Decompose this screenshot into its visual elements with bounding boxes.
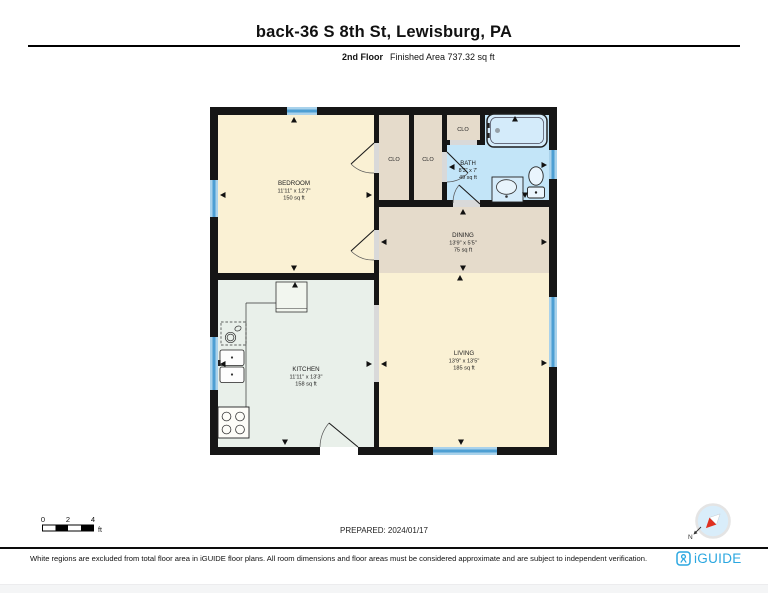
svg-text:2: 2 [66, 515, 70, 524]
iguide-logo[interactable]: iGUIDE [676, 551, 742, 566]
iguide-logo-text: iGUIDE [694, 551, 742, 566]
svg-text:13'9" x 13'5": 13'9" x 13'5" [449, 359, 480, 365]
closet-bath-label: CLO [457, 127, 469, 133]
svg-text:KITCHEN: KITCHEN [292, 366, 319, 373]
closet-bedroom-label: CLO [388, 157, 400, 163]
prepared-date: PREPARED: 2024/01/17 [0, 526, 768, 535]
svg-text:LIVING: LIVING [454, 350, 474, 357]
svg-text:BEDROOM: BEDROOM [278, 180, 310, 187]
bath-side-doorway [442, 152, 447, 182]
svg-text:150 sq ft: 150 sq ft [283, 196, 305, 202]
bedroom-top-window [287, 107, 317, 115]
iguide-logo-icon [676, 551, 691, 566]
bedroom-doorway [374, 230, 379, 260]
stove [218, 407, 249, 438]
bath-label: BATH 8'3" x 7' 49 sq ft [459, 161, 478, 181]
svg-text:185 sq ft: 185 sq ft [453, 366, 475, 372]
svg-text:158 sq ft: 158 sq ft [295, 382, 317, 388]
svg-text:DINING: DINING [452, 232, 474, 239]
svg-text:N: N [688, 534, 693, 541]
svg-text:11'11" x 12'7": 11'11" x 12'7" [278, 189, 311, 195]
bath-right-window [549, 150, 557, 179]
compass: N [684, 499, 736, 545]
kitchen-living-opening [374, 305, 379, 382]
bathtub [487, 114, 548, 147]
closet-hall-label: CLO [422, 157, 434, 163]
title-divider [28, 45, 740, 47]
floorplan-page: back-36 S 8th St, Lewisburg, PA 2nd Floo… [0, 0, 768, 593]
north-indicator: N [688, 527, 701, 541]
svg-text:13'9" x 5'5": 13'9" x 5'5" [449, 241, 477, 247]
room-fills [218, 115, 549, 447]
kitchen-left-window [210, 337, 218, 390]
svg-text:75 sq ft: 75 sq ft [454, 248, 473, 254]
footer-divider [0, 547, 768, 549]
living-bottom-window [433, 447, 497, 455]
bedroom-closet-doorway [374, 143, 379, 173]
svg-text:11'11" x 13'3": 11'11" x 13'3" [290, 375, 323, 381]
bath-closet-opening [450, 140, 477, 145]
page-title: back-36 S 8th St, Lewisburg, PA [0, 23, 768, 42]
svg-text:BATH: BATH [460, 161, 476, 167]
scale-tick-labels: 0 2 4 [41, 515, 95, 524]
svg-text:49 sq ft: 49 sq ft [459, 175, 477, 181]
bathroom-sink [492, 177, 523, 202]
footer-disclaimer: White regions are excluded from total fl… [30, 554, 660, 563]
svg-text:0: 0 [41, 515, 45, 524]
kitchen-exterior-doorway [320, 447, 358, 455]
svg-text:8'3" x 7': 8'3" x 7' [459, 168, 478, 174]
svg-text:4: 4 [91, 515, 95, 524]
bedroom-left-window [210, 180, 218, 217]
living-right-window [549, 297, 557, 367]
floorplan-canvas: BEDROOM 11'11" x 12'7" 150 sq ft KITCHEN… [210, 107, 557, 455]
refrigerator [276, 282, 307, 312]
finished-area-label: Finished Area 737.32 sq ft [390, 52, 495, 62]
floor-label: 2nd Floor [342, 52, 383, 62]
page-bottom-strip [0, 584, 768, 593]
